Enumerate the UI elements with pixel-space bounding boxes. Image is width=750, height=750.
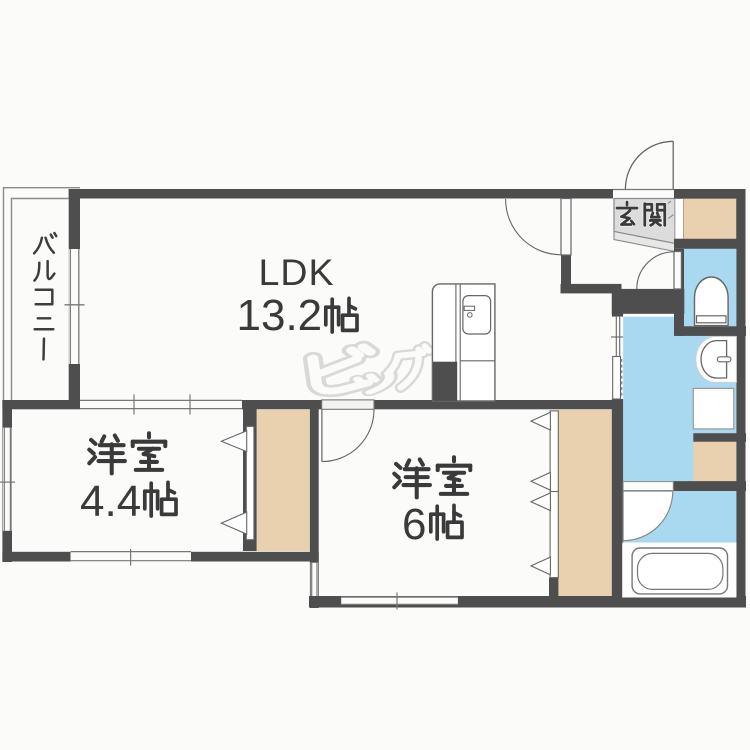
svg-text:LDK: LDK xyxy=(259,251,335,293)
svg-text:6: 6 xyxy=(402,500,426,549)
svg-text:13.2: 13.2 xyxy=(237,291,323,340)
svg-text:4.4: 4.4 xyxy=(80,477,141,526)
